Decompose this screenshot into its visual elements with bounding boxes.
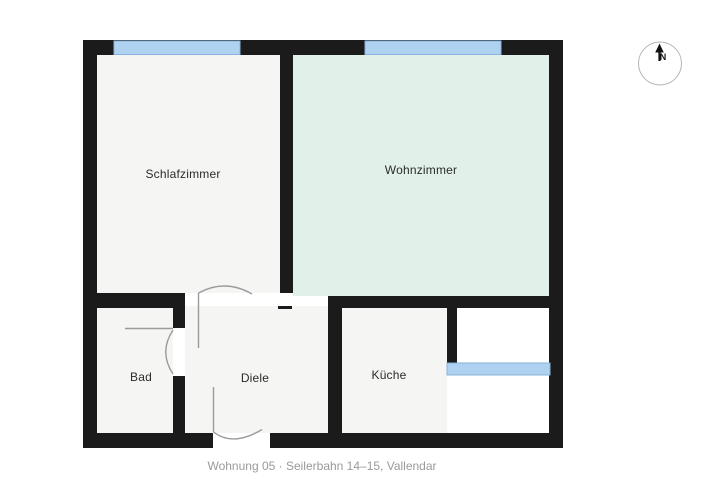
wall-schlaf-bottom xyxy=(97,293,185,308)
wall-wohn-bottom xyxy=(328,296,549,308)
wall-bad-right-lower xyxy=(173,376,185,433)
wall-kueche-right-stub xyxy=(447,308,457,363)
room-area-diele xyxy=(185,306,328,433)
label-wohnzimmer: Wohnzimmer xyxy=(385,163,457,177)
wall-bottom-left xyxy=(83,433,213,448)
compass-north-label: N xyxy=(660,52,667,62)
window-schlafzimmer xyxy=(114,41,240,55)
plan-caption: Wohnung 05 · Seilerbahn 14–15, Vallendar xyxy=(207,459,436,473)
window-niche xyxy=(447,363,550,375)
label-kueche: Küche xyxy=(371,368,406,382)
wall-bottom-right xyxy=(270,433,563,448)
label-diele: Diele xyxy=(241,371,269,385)
wall-bad-right-upper xyxy=(173,308,185,328)
label-schlafzimmer: Schlafzimmer xyxy=(145,167,220,181)
wall-kueche-left xyxy=(328,308,342,433)
wall-right xyxy=(549,40,563,448)
wall-schlaf-wohn-divider xyxy=(280,55,293,293)
wall-left xyxy=(83,40,97,448)
floorplan-svg xyxy=(0,0,709,500)
wall-end-tick xyxy=(278,306,292,309)
window-wohnzimmer xyxy=(365,41,501,55)
label-bad: Bad xyxy=(130,370,152,384)
